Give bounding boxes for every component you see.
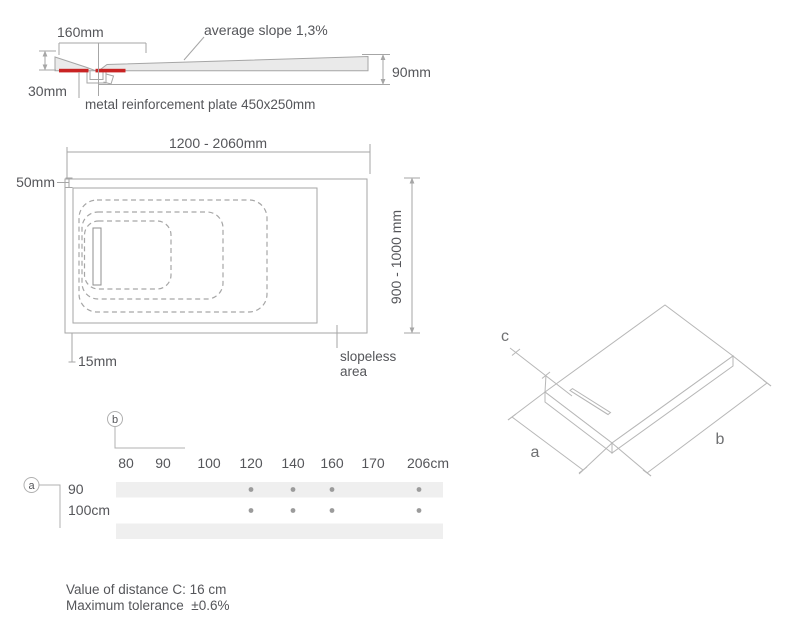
column-header: 140 xyxy=(281,455,305,471)
availability-dot xyxy=(330,487,335,492)
dim-30: 30mm xyxy=(28,51,67,100)
column-header: 100 xyxy=(197,455,221,471)
slopeless-label-2: area xyxy=(340,364,368,379)
isometric-view-diagram: a b c xyxy=(480,280,800,510)
notes-block: Value of distance C: 16 cm Maximum toler… xyxy=(66,582,229,614)
dim-depth-label: 900 - 1000 mm xyxy=(388,210,404,304)
dim-90: 90mm xyxy=(362,54,431,85)
iso-label-b: b xyxy=(716,431,725,448)
row-label-90: 90 xyxy=(68,481,84,497)
dim-30-label: 30mm xyxy=(28,83,67,99)
spec-sheet: 160mm average slope 1,3% 30mm 90mm metal… xyxy=(0,0,800,630)
availability-dot xyxy=(417,487,422,492)
availability-dot xyxy=(249,508,254,513)
column-headers: 8090100120140160170206cm xyxy=(118,455,449,471)
axis-a-label: a xyxy=(28,480,35,492)
column-header: 80 xyxy=(118,455,134,471)
availability-dot xyxy=(291,508,296,513)
dim-width-label: 1200 - 2060mm xyxy=(169,135,267,151)
row-label-100cm: 100cm xyxy=(68,502,110,518)
dim-depth: 900 - 1000 mm xyxy=(388,178,420,334)
dim-15-label: 15mm xyxy=(78,353,117,369)
dim-90-label: 90mm xyxy=(392,64,431,80)
axis-b-marker: b xyxy=(108,412,186,449)
iso-tray xyxy=(545,305,733,453)
availability-dot xyxy=(291,487,296,492)
column-header: 120 xyxy=(239,455,263,471)
availability-dot xyxy=(330,508,335,513)
availability-dot xyxy=(249,487,254,492)
dim-160: 160mm xyxy=(57,24,146,96)
plan-view-diagram: 1200 - 2060mm 50mm 900 - 1000 mm xyxy=(0,130,460,380)
dim-width: 1200 - 2060mm xyxy=(67,135,370,179)
table-band-row1 xyxy=(116,482,443,498)
tray-outline xyxy=(65,179,367,333)
dim-15: 15mm xyxy=(69,333,117,369)
column-header: 170 xyxy=(361,455,385,471)
note-tolerance: Maximum tolerance ±0.6% xyxy=(66,598,229,614)
cross-section-diagram: 160mm average slope 1,3% 30mm 90mm metal… xyxy=(0,10,460,118)
column-header: 160 xyxy=(320,455,344,471)
axis-b-label: b xyxy=(112,414,118,426)
availability-dot xyxy=(417,508,422,513)
iso-label-c: c xyxy=(501,328,509,345)
size-availability-table: b a 90 100cm 8090100120140160170206cm xyxy=(10,400,470,550)
plate-annotation: metal reinforcement plate 450x250mm xyxy=(79,72,315,112)
dim-50: 50mm xyxy=(16,174,72,190)
dim-50-label: 50mm xyxy=(16,174,55,190)
axis-a-marker: a xyxy=(24,478,60,529)
note-distance-c: Value of distance C: 16 cm xyxy=(66,582,229,598)
dim-160-label: 160mm xyxy=(57,24,104,40)
slopeless-label-1: slopeless xyxy=(340,349,397,364)
slope-annotation: average slope 1,3% xyxy=(184,22,328,60)
plate-label: metal reinforcement plate 450x250mm xyxy=(85,97,315,112)
column-header: 206cm xyxy=(407,455,449,471)
table-band-row3 xyxy=(116,524,443,540)
column-header: 90 xyxy=(155,455,171,471)
iso-label-a: a xyxy=(531,444,540,461)
slope-label: average slope 1,3% xyxy=(204,22,328,38)
